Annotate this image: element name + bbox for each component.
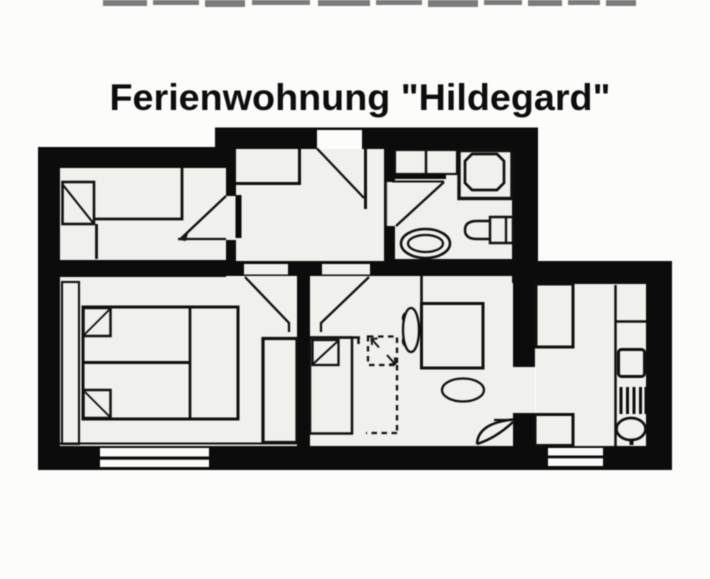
svg-text:Ferienwohnung "Hildegard": Ferienwohnung "Hildegard" bbox=[110, 77, 611, 118]
